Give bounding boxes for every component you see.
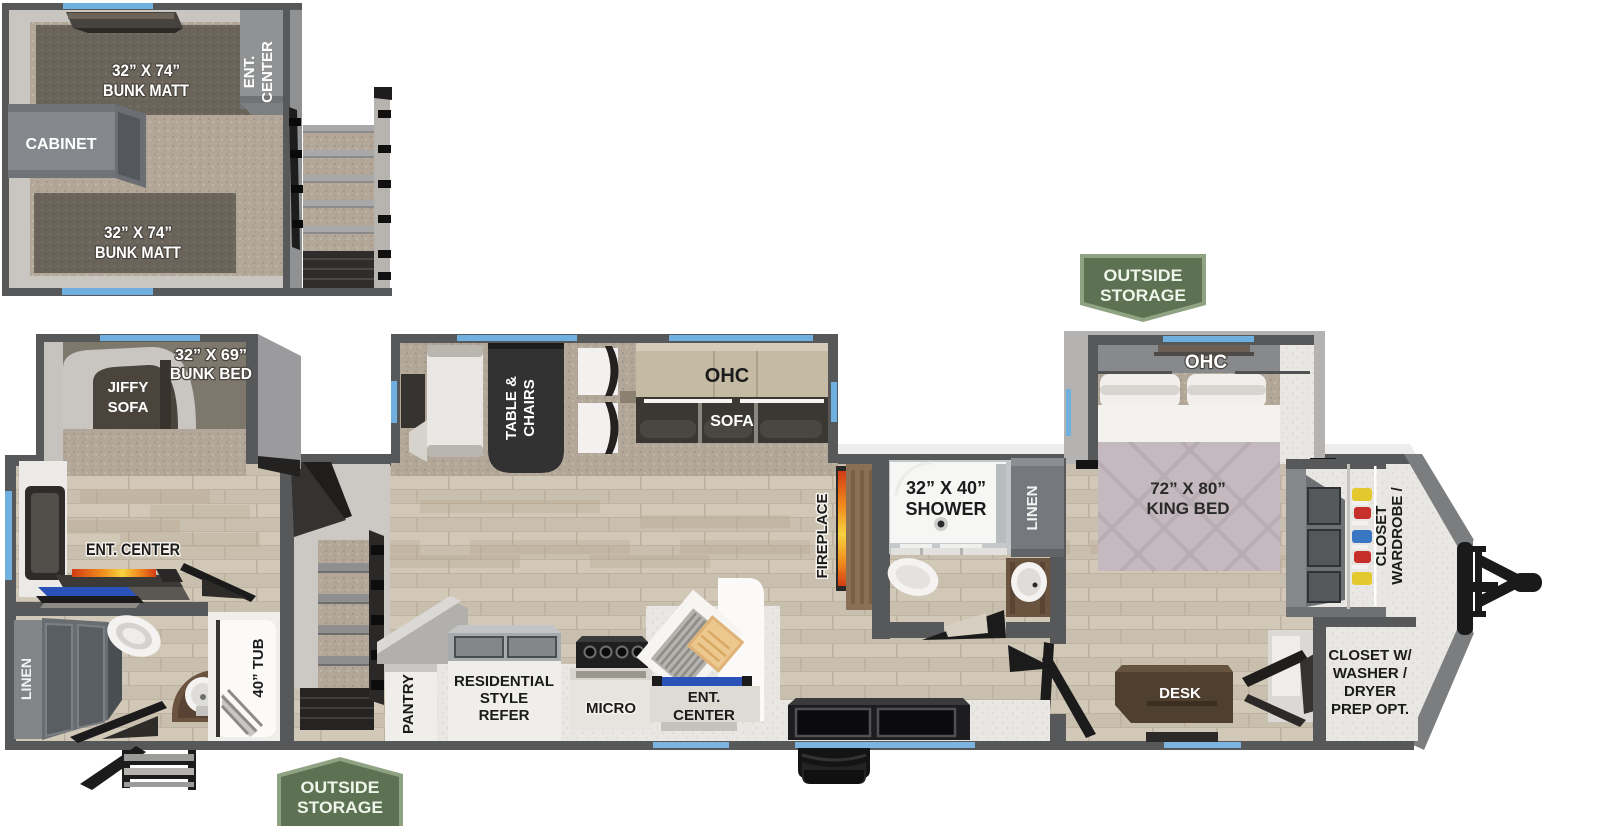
- svg-text:32” X 74”: 32” X 74”: [112, 61, 180, 80]
- svg-text:72” X 80”: 72” X 80”: [1150, 479, 1226, 498]
- svg-text:SOFA: SOFA: [710, 413, 754, 430]
- svg-text:CABINET: CABINET: [25, 136, 96, 153]
- svg-text:32” X 40”: 32” X 40”: [906, 478, 986, 498]
- svg-text:CLOSET: CLOSET: [1373, 506, 1390, 567]
- svg-text:DRYER: DRYER: [1344, 683, 1396, 700]
- svg-text:JIFFY: JIFFY: [108, 379, 149, 396]
- svg-text:OHC: OHC: [705, 365, 749, 387]
- svg-text:CENTER: CENTER: [673, 707, 735, 724]
- svg-text:LINEN: LINEN: [1024, 486, 1041, 531]
- svg-text:PANTRY: PANTRY: [400, 674, 417, 734]
- svg-text:CLOSET W/: CLOSET W/: [1328, 647, 1412, 664]
- svg-text:MICRO: MICRO: [586, 700, 636, 717]
- svg-text:STYLE: STYLE: [480, 690, 528, 707]
- svg-text:STORAGE: STORAGE: [297, 798, 383, 817]
- svg-text:CENTER: CENTER: [259, 41, 276, 103]
- svg-text:TABLE &: TABLE &: [503, 376, 520, 440]
- svg-text:OHC: OHC: [1185, 352, 1228, 373]
- svg-text:BUNK BED: BUNK BED: [170, 366, 252, 383]
- svg-text:BUNK MATT: BUNK MATT: [95, 243, 182, 262]
- svg-text:SOFA: SOFA: [108, 399, 149, 416]
- svg-text:OUTSIDE: OUTSIDE: [301, 778, 380, 797]
- svg-text:LINEN: LINEN: [18, 658, 34, 700]
- svg-text:KING BED: KING BED: [1146, 499, 1229, 518]
- svg-text:CHAIRS: CHAIRS: [521, 379, 538, 437]
- svg-text:BUNK MATT: BUNK MATT: [103, 81, 190, 100]
- svg-text:RESIDENTIAL: RESIDENTIAL: [454, 673, 554, 690]
- svg-text:PREP OPT.: PREP OPT.: [1331, 701, 1409, 718]
- svg-text:FIREPLACE: FIREPLACE: [814, 493, 831, 578]
- svg-text:WASHER /: WASHER /: [1333, 665, 1408, 682]
- svg-text:DESK: DESK: [1159, 685, 1201, 702]
- svg-text:ENT.: ENT.: [241, 56, 258, 89]
- svg-text:WARDROBE /: WARDROBE /: [1389, 486, 1406, 584]
- svg-text:STORAGE: STORAGE: [1100, 286, 1186, 305]
- svg-text:32” X 74”: 32” X 74”: [104, 223, 172, 242]
- svg-text:ENT. CENTER: ENT. CENTER: [86, 540, 180, 559]
- svg-text:32” X 69”: 32” X 69”: [175, 347, 247, 364]
- svg-text:OUTSIDE: OUTSIDE: [1104, 266, 1183, 285]
- svg-text:SHOWER: SHOWER: [906, 499, 987, 519]
- svg-text:40” TUB: 40” TUB: [250, 638, 267, 697]
- svg-text:ENT.: ENT.: [688, 689, 721, 706]
- svg-text:REFER: REFER: [479, 707, 530, 724]
